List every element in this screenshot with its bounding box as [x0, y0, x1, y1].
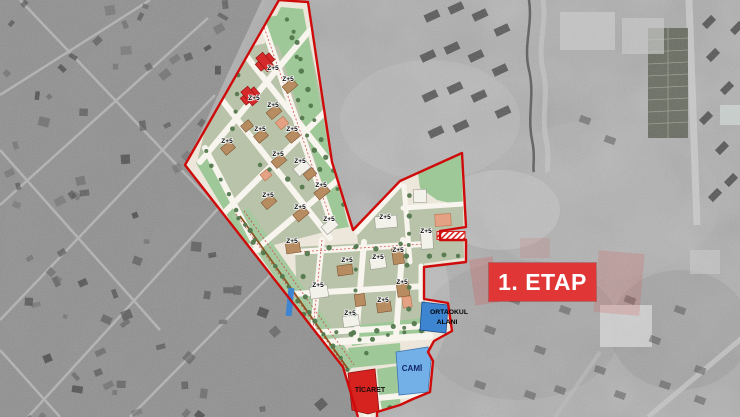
tree — [300, 185, 305, 190]
block-label: Z+5 — [341, 257, 353, 264]
tree — [235, 92, 240, 97]
tree — [323, 155, 328, 160]
tree — [267, 167, 272, 172]
tree — [330, 344, 335, 349]
block-label: Z+5 — [248, 95, 260, 102]
block-label: Z+5 — [377, 297, 389, 304]
block-label: Z+5 — [221, 138, 233, 145]
tree — [285, 17, 289, 21]
tree — [298, 57, 303, 62]
tree — [295, 55, 299, 59]
tree — [374, 328, 379, 333]
tree — [285, 176, 290, 181]
tree — [406, 306, 411, 311]
tree — [373, 246, 378, 251]
tree — [230, 126, 235, 131]
tree — [243, 223, 247, 227]
tree — [364, 351, 368, 355]
building-white — [413, 189, 427, 203]
tree — [305, 251, 311, 257]
tree — [402, 326, 406, 330]
block-label: Z+5 — [282, 76, 294, 83]
block-label: Z+5 — [344, 310, 356, 317]
block-label: Z+5 — [286, 126, 298, 133]
tree — [398, 242, 403, 247]
tree — [299, 68, 304, 73]
block-label: Z+5 — [396, 279, 408, 286]
block-label: Z+5 — [267, 102, 279, 109]
tree — [391, 324, 396, 329]
tree — [289, 35, 294, 40]
etap-label: 1. ETAP — [489, 263, 596, 301]
commerce-label: TİCARET — [355, 386, 386, 394]
tree — [402, 330, 406, 334]
etap-label-text: 1. ETAP — [498, 269, 587, 296]
tree — [227, 192, 231, 196]
masterplan-aerial-view: Z+5Z+5Z+5Z+5Z+5Z+5Z+5Z+5Z+5Z+5Z+5Z+5Z+5Z… — [0, 0, 740, 417]
tree — [219, 178, 223, 182]
school-label-line2: ALANI — [437, 319, 458, 326]
block-label: Z+5 — [286, 238, 298, 245]
block-label: Z+5 — [294, 204, 306, 211]
tree — [370, 337, 375, 342]
tree — [204, 149, 208, 153]
tree — [307, 310, 312, 315]
tree — [295, 40, 300, 45]
tree — [407, 193, 412, 198]
tree — [312, 148, 317, 153]
block-label: Z+5 — [379, 214, 391, 221]
tree — [339, 356, 343, 360]
tree — [303, 294, 308, 299]
tree — [407, 213, 412, 218]
tree — [407, 232, 411, 236]
tree — [442, 252, 447, 257]
tree — [234, 208, 239, 213]
tree — [404, 263, 409, 268]
map-canvas: Z+5Z+5Z+5Z+5Z+5Z+5Z+5Z+5Z+5Z+5Z+5Z+5Z+5Z… — [0, 0, 740, 417]
tree — [326, 245, 331, 250]
tree — [358, 338, 362, 342]
tree — [305, 87, 310, 92]
tree — [312, 118, 316, 122]
tree — [234, 110, 238, 114]
tree — [305, 134, 309, 138]
tree — [312, 318, 317, 323]
tree — [317, 167, 322, 172]
tree — [253, 238, 257, 242]
tree — [404, 253, 409, 258]
tree — [319, 137, 324, 142]
tree — [351, 330, 356, 335]
tree — [295, 299, 300, 304]
tree — [280, 274, 285, 279]
tree — [300, 116, 305, 121]
tree — [248, 228, 253, 233]
tree — [300, 274, 305, 279]
block-label: Z+5 — [392, 247, 404, 254]
tree — [456, 254, 460, 258]
tree — [209, 163, 214, 168]
block-label: Z+5 — [372, 254, 384, 261]
parcel-salmon — [435, 214, 452, 227]
building-tan — [354, 293, 366, 306]
tree — [412, 321, 417, 326]
block-label: Z+5 — [272, 151, 284, 158]
building-tan — [337, 264, 353, 276]
mosque-label: CAMİ — [402, 364, 422, 373]
tree — [334, 330, 338, 334]
tree — [292, 30, 296, 34]
tree — [345, 368, 349, 372]
block-label: Z+5 — [294, 158, 306, 165]
block-label: Z+5 — [315, 182, 327, 189]
block-label: Z+5 — [267, 65, 279, 72]
block-label: Z+5 — [312, 282, 324, 289]
block-label: Z+5 — [262, 192, 274, 199]
tree — [321, 332, 325, 336]
tree — [386, 333, 390, 337]
tree — [273, 264, 277, 268]
tree — [407, 243, 411, 247]
tree — [353, 245, 357, 249]
block-label: Z+5 — [420, 228, 432, 235]
tree — [427, 253, 432, 258]
parcel-salmon — [402, 296, 412, 308]
tree — [309, 104, 314, 109]
tree — [296, 98, 300, 102]
school-zone — [420, 302, 448, 333]
tree — [354, 267, 358, 271]
tree — [258, 163, 262, 167]
tree — [236, 216, 241, 221]
block-label: Z+5 — [254, 126, 266, 133]
block-label: Z+5 — [323, 216, 335, 223]
tree — [353, 289, 357, 293]
tree — [261, 250, 266, 255]
school-label-line1: ORTAOKUL — [430, 309, 468, 316]
